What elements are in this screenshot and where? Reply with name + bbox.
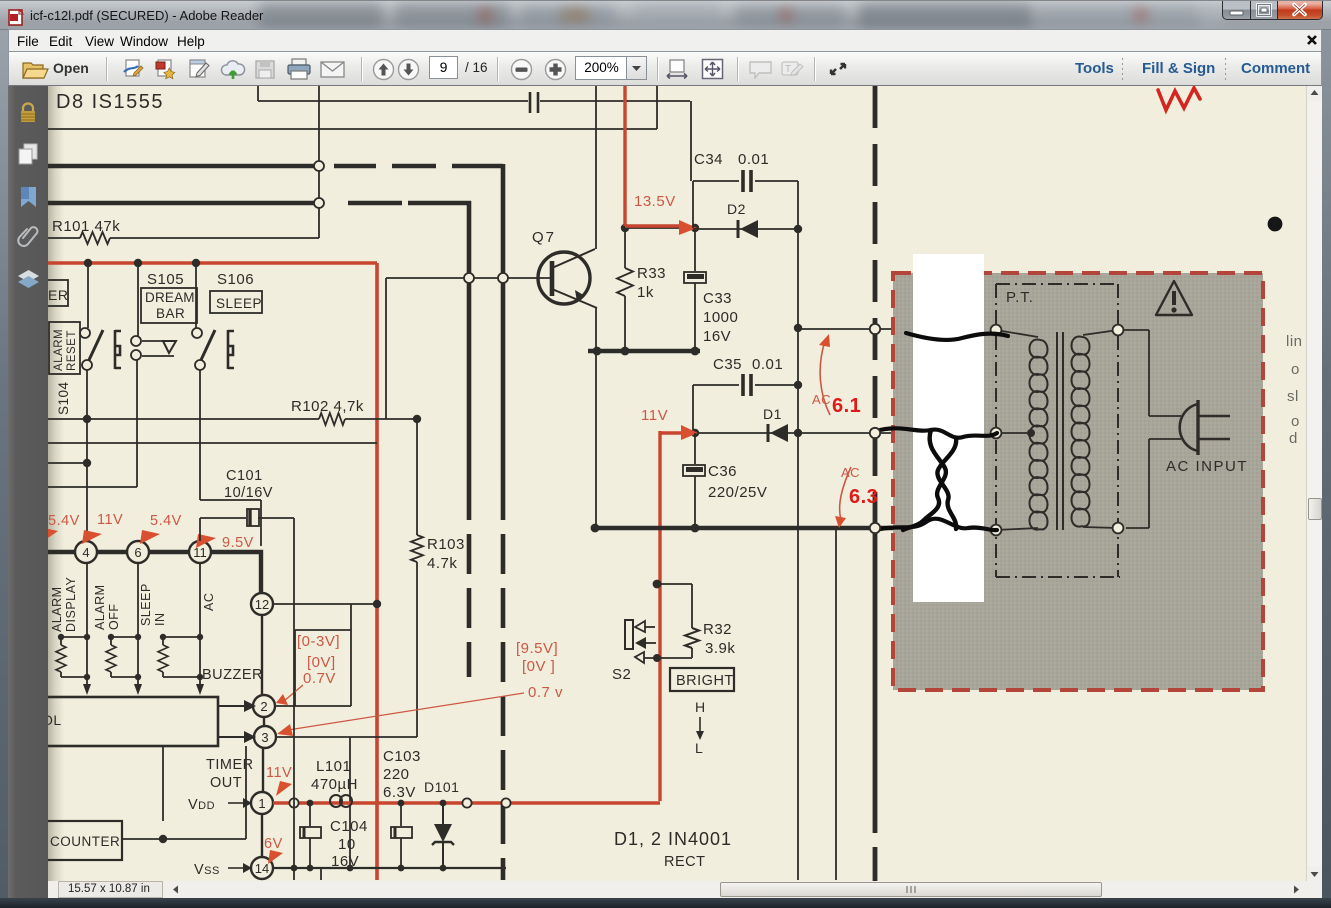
- svg-text:S104: S104: [56, 381, 71, 415]
- svg-text:220: 220: [383, 766, 410, 783]
- svg-text:o: o: [1291, 361, 1300, 378]
- svg-text:6.3: 6.3: [849, 486, 878, 508]
- svg-text:[9.5V]: [9.5V]: [516, 640, 558, 657]
- svg-text:C36: C36: [708, 463, 737, 480]
- svg-text:DREAM: DREAM: [145, 290, 195, 305]
- svg-text:AC: AC: [841, 465, 860, 480]
- svg-text:1k: 1k: [637, 284, 654, 301]
- svg-text:C101: C101: [226, 468, 263, 484]
- svg-text:2: 2: [260, 699, 267, 714]
- svg-text:[0V ]: [0V ]: [522, 658, 555, 675]
- svg-text:1: 1: [258, 796, 265, 811]
- svg-text:0.01: 0.01: [752, 356, 783, 373]
- svg-text:C103: C103: [383, 748, 421, 765]
- svg-text:16V: 16V: [703, 328, 731, 345]
- svg-text:C34: C34: [694, 151, 723, 168]
- svg-text:IN: IN: [153, 613, 167, 627]
- svg-text:1000: 1000: [703, 309, 738, 326]
- svg-text:VSS: VSS: [194, 862, 220, 878]
- svg-text:D101: D101: [424, 779, 459, 795]
- svg-text:13.5V: 13.5V: [634, 193, 676, 210]
- svg-text:14: 14: [255, 861, 269, 876]
- svg-text:OUT: OUT: [210, 775, 242, 791]
- svg-text:o: o: [1291, 413, 1300, 430]
- svg-text:AC INPUT: AC INPUT: [1166, 458, 1248, 475]
- svg-text:11V: 11V: [97, 512, 123, 528]
- svg-text:10: 10: [338, 836, 356, 853]
- svg-text:11V: 11V: [266, 765, 292, 781]
- svg-text:COUNTER: COUNTER: [50, 834, 120, 849]
- svg-text:SLEEP: SLEEP: [216, 296, 262, 311]
- svg-text:lin: lin: [1286, 333, 1303, 350]
- svg-text:C35: C35: [713, 356, 742, 373]
- svg-text:S105: S105: [147, 271, 184, 288]
- svg-text:11V: 11V: [641, 407, 668, 424]
- svg-text:[0-3V]: [0-3V]: [297, 633, 340, 650]
- svg-text:BRIGHT: BRIGHT: [676, 673, 734, 689]
- svg-text:H: H: [695, 699, 706, 715]
- svg-text:0.7V: 0.7V: [303, 670, 336, 687]
- svg-text:Q7: Q7: [532, 229, 556, 246]
- svg-text:6: 6: [134, 545, 141, 560]
- svg-text:12: 12: [255, 597, 269, 612]
- svg-text:4.7k: 4.7k: [427, 555, 457, 572]
- svg-text:5.4V: 5.4V: [150, 513, 182, 529]
- svg-text:VDD: VDD: [188, 797, 215, 813]
- svg-text:6V: 6V: [264, 836, 283, 852]
- svg-text:D8 IS1555: D8 IS1555: [56, 91, 164, 113]
- svg-text:10/16V: 10/16V: [224, 485, 273, 501]
- svg-text:sl: sl: [1287, 388, 1299, 405]
- svg-text:[0V]: [0V]: [307, 654, 336, 671]
- svg-text:OL: OL: [48, 712, 62, 728]
- svg-text:ALARM: ALARM: [93, 584, 107, 630]
- svg-text:RESET: RESET: [66, 330, 78, 371]
- svg-text:P.T.: P.T.: [1006, 289, 1034, 306]
- svg-text:R102 4,7k: R102 4,7k: [291, 398, 364, 415]
- svg-text:220/25V: 220/25V: [708, 484, 767, 501]
- svg-text:S106: S106: [217, 271, 254, 288]
- svg-text:D1: D1: [763, 406, 782, 422]
- svg-text:BAR: BAR: [156, 306, 185, 321]
- svg-text:ALARM: ALARM: [50, 586, 64, 632]
- svg-text:R101 47k: R101 47k: [52, 218, 120, 235]
- svg-text:5.4V: 5.4V: [48, 513, 80, 529]
- svg-text:R32: R32: [703, 621, 732, 638]
- svg-text:RECT: RECT: [664, 854, 705, 870]
- svg-text:S2: S2: [612, 666, 631, 683]
- svg-text:11: 11: [193, 545, 207, 560]
- svg-text:470µH: 470µH: [311, 776, 358, 793]
- svg-text:L101: L101: [316, 758, 351, 775]
- svg-text:9.5V: 9.5V: [222, 535, 254, 551]
- svg-text:L: L: [695, 740, 703, 756]
- svg-text:6.3V: 6.3V: [383, 784, 416, 801]
- svg-text:R103: R103: [427, 536, 465, 553]
- svg-text:OFF: OFF: [107, 604, 121, 631]
- svg-text:0.01: 0.01: [738, 151, 769, 168]
- svg-text:AC: AC: [202, 593, 216, 611]
- svg-text:6.1: 6.1: [832, 395, 861, 417]
- svg-text:AC: AC: [812, 392, 831, 407]
- svg-text:BUZZER: BUZZER: [202, 667, 263, 683]
- svg-text:D2: D2: [727, 201, 746, 217]
- svg-text:3.9k: 3.9k: [705, 640, 735, 657]
- svg-text:ALARM: ALARM: [53, 329, 65, 371]
- svg-text:C33: C33: [703, 290, 732, 307]
- svg-text:ER: ER: [48, 287, 68, 303]
- svg-text:SLEEP: SLEEP: [139, 583, 153, 626]
- svg-text:C104: C104: [330, 818, 368, 835]
- svg-text:4: 4: [82, 545, 89, 560]
- svg-text:D1, 2 IN4001: D1, 2 IN4001: [614, 829, 732, 849]
- svg-text:0.7 v: 0.7 v: [528, 684, 563, 701]
- svg-text:d: d: [1289, 430, 1298, 447]
- svg-text:T: T: [785, 64, 791, 75]
- svg-text:DISPLAY: DISPLAY: [64, 576, 78, 632]
- svg-text:3: 3: [261, 730, 268, 745]
- svg-text:R33: R33: [637, 265, 666, 282]
